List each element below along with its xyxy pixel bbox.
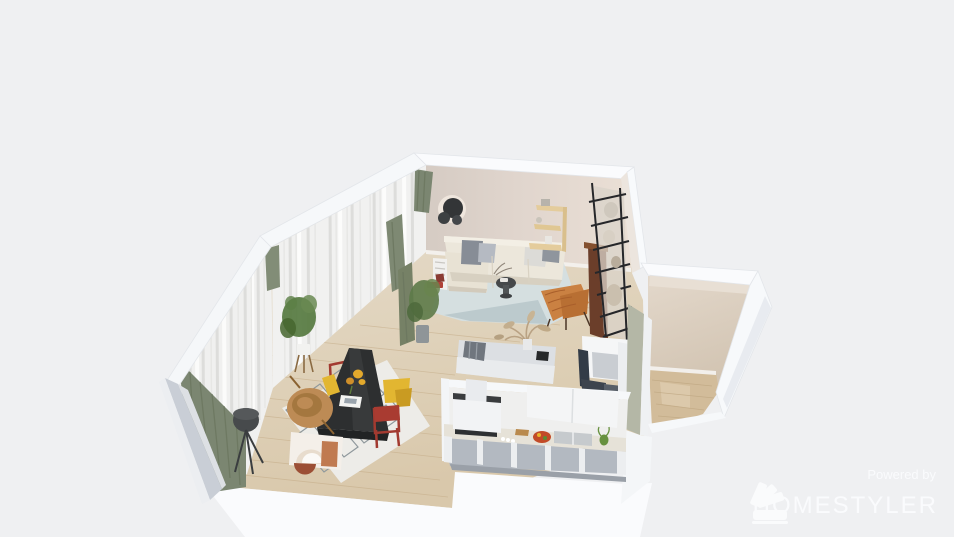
svg-text:Powered by: Powered by	[867, 467, 936, 482]
